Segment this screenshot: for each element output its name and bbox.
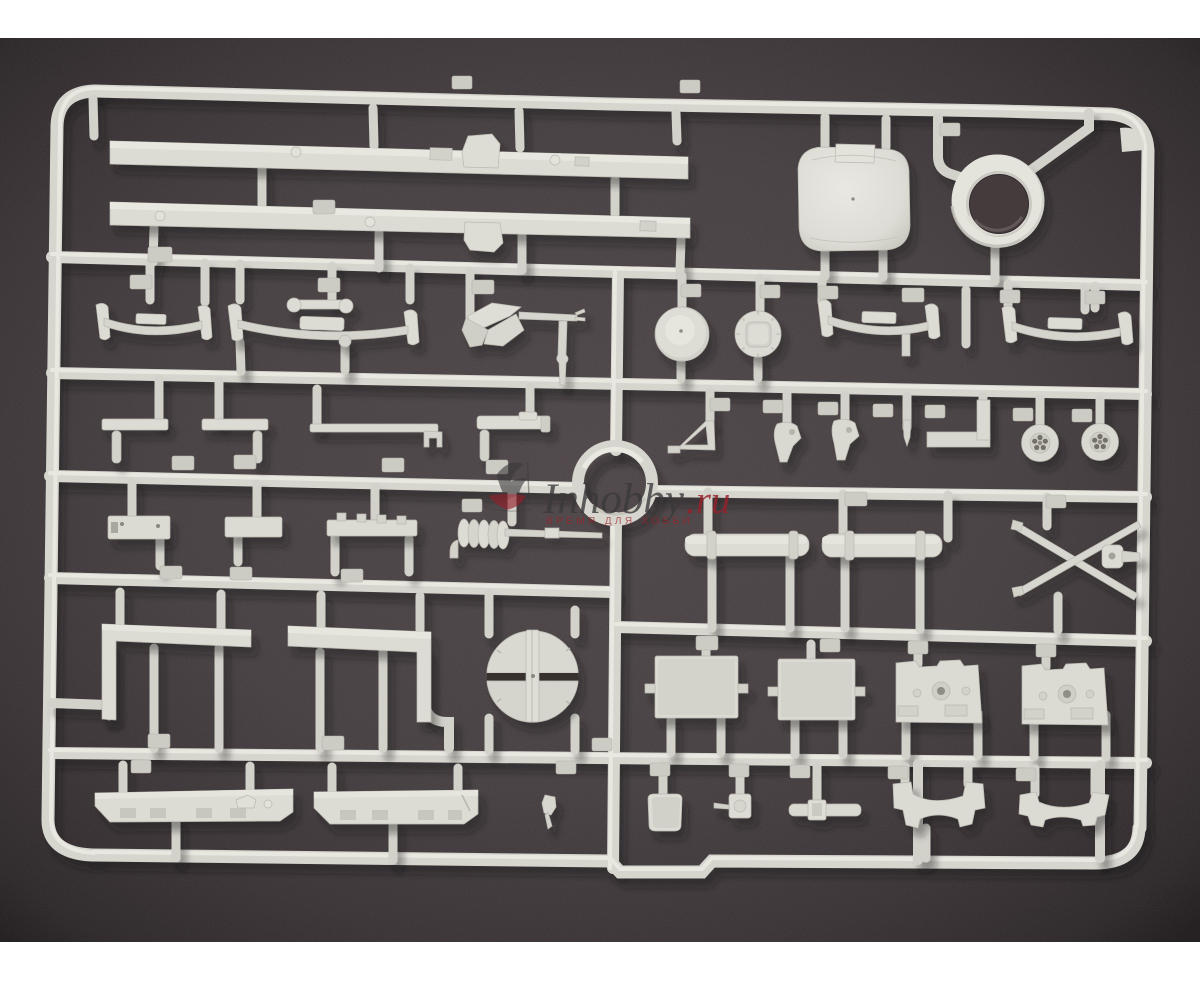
svg-text:ВРЕМЯ ДЛЯ ХОББИ: ВРЕМЯ ДЛЯ ХОББИ (546, 516, 693, 527)
